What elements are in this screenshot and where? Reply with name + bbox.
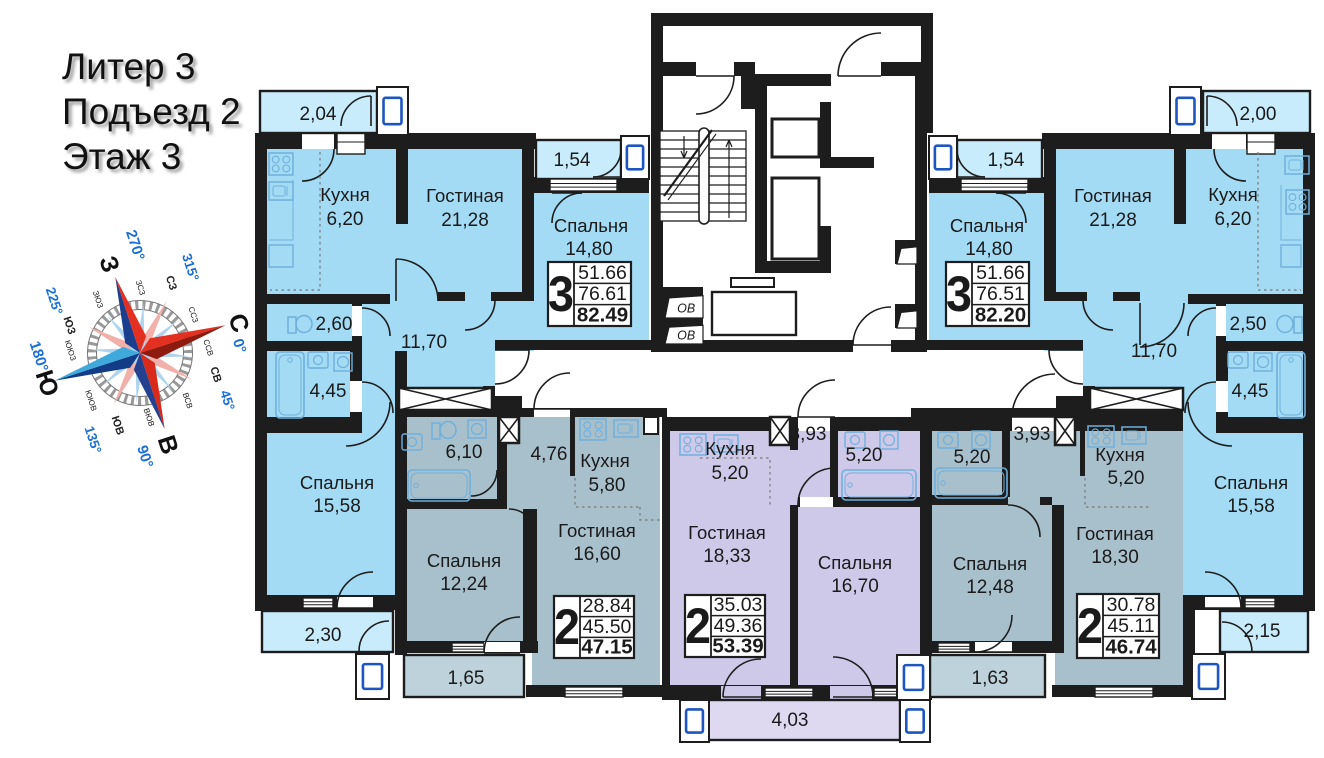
svg-text:Кухня: Кухня bbox=[705, 438, 755, 459]
svg-text:2,04: 2,04 bbox=[300, 104, 337, 125]
svg-text:12,48: 12,48 bbox=[966, 577, 1014, 598]
svg-text:Спальня: Спальня bbox=[554, 215, 628, 236]
svg-text:2,30: 2,30 bbox=[305, 625, 342, 646]
svg-text:Этаж 3: Этаж 3 bbox=[62, 136, 181, 177]
svg-text:Гостиная: Гостиная bbox=[426, 185, 504, 206]
svg-text:4,45: 4,45 bbox=[310, 381, 347, 402]
svg-text:1,54: 1,54 bbox=[988, 150, 1025, 171]
svg-text:47.15: 47.15 bbox=[581, 636, 632, 659]
svg-text:18,33: 18,33 bbox=[703, 546, 751, 567]
svg-text:18,30: 18,30 bbox=[1091, 547, 1139, 568]
svg-text:35.03: 35.03 bbox=[714, 594, 763, 616]
svg-text:15,58: 15,58 bbox=[1227, 496, 1275, 517]
svg-text:2: 2 bbox=[1077, 598, 1103, 654]
svg-text:3,93: 3,93 bbox=[1014, 424, 1051, 445]
svg-text:76.61: 76.61 bbox=[578, 283, 627, 305]
svg-text:Кухня: Кухня bbox=[1208, 184, 1258, 205]
svg-text:6,10: 6,10 bbox=[446, 442, 483, 463]
svg-text:6,20: 6,20 bbox=[1215, 209, 1252, 230]
svg-text:16,60: 16,60 bbox=[573, 544, 621, 565]
svg-text:28.84: 28.84 bbox=[583, 595, 632, 617]
svg-text:82.49: 82.49 bbox=[577, 304, 628, 327]
svg-text:1,65: 1,65 bbox=[448, 668, 485, 689]
svg-text:3: 3 bbox=[548, 266, 574, 322]
svg-text:12,24: 12,24 bbox=[440, 574, 488, 595]
svg-text:1,63: 1,63 bbox=[972, 668, 1009, 689]
svg-text:ОВ: ОВ bbox=[677, 328, 695, 342]
svg-text:5,20: 5,20 bbox=[1108, 468, 1145, 489]
svg-text:2: 2 bbox=[554, 599, 580, 655]
svg-text:6,20: 6,20 bbox=[327, 209, 364, 230]
svg-text:15,58: 15,58 bbox=[313, 496, 361, 517]
svg-text:Кухня: Кухня bbox=[320, 184, 370, 205]
svg-text:Подъезд 2: Подъезд 2 bbox=[62, 91, 241, 132]
svg-text:3,93: 3,93 bbox=[790, 424, 827, 445]
svg-text:5,20: 5,20 bbox=[954, 447, 991, 468]
svg-text:45.11: 45.11 bbox=[1107, 615, 1154, 637]
svg-text:4,03: 4,03 bbox=[772, 710, 809, 731]
svg-text:51.66: 51.66 bbox=[976, 262, 1025, 284]
svg-text:14,80: 14,80 bbox=[965, 239, 1013, 260]
svg-text:1,54: 1,54 bbox=[554, 150, 591, 171]
svg-text:82.20: 82.20 bbox=[975, 304, 1026, 327]
svg-text:21,28: 21,28 bbox=[441, 210, 489, 231]
svg-text:Кухня: Кухня bbox=[580, 450, 630, 471]
svg-text:76.51: 76.51 bbox=[976, 283, 1025, 305]
svg-text:11,70: 11,70 bbox=[401, 332, 447, 353]
svg-text:Спальня: Спальня bbox=[300, 472, 374, 493]
svg-text:4,76: 4,76 bbox=[531, 444, 568, 465]
svg-text:Гостиная: Гостиная bbox=[1076, 523, 1154, 544]
svg-text:5,80: 5,80 bbox=[589, 475, 626, 496]
svg-text:Спальня: Спальня bbox=[427, 550, 501, 571]
svg-text:2,50: 2,50 bbox=[1230, 314, 1267, 335]
svg-text:Спальня: Спальня bbox=[953, 553, 1027, 574]
svg-text:11,70: 11,70 bbox=[1131, 341, 1177, 362]
svg-text:Кухня: Кухня bbox=[1095, 444, 1145, 465]
svg-text:30.78: 30.78 bbox=[1107, 594, 1156, 616]
svg-text:5,20: 5,20 bbox=[846, 445, 883, 466]
svg-text:Спальня: Спальня bbox=[1214, 472, 1288, 493]
svg-text:Спальня: Спальня bbox=[950, 215, 1024, 236]
svg-text:ОВ: ОВ bbox=[677, 301, 695, 315]
svg-text:Гостиная: Гостиная bbox=[688, 522, 766, 543]
svg-text:Гостиная: Гостиная bbox=[558, 520, 636, 541]
svg-text:Спальня: Спальня bbox=[818, 552, 892, 573]
svg-text:4,45: 4,45 bbox=[1232, 381, 1269, 402]
svg-text:46.74: 46.74 bbox=[1105, 636, 1157, 659]
svg-text:14,80: 14,80 bbox=[565, 239, 613, 260]
svg-text:2: 2 bbox=[685, 598, 711, 654]
svg-text:Литер 3: Литер 3 bbox=[62, 46, 196, 87]
svg-text:5,20: 5,20 bbox=[712, 463, 749, 484]
svg-text:51.66: 51.66 bbox=[578, 262, 627, 284]
svg-text:2,60: 2,60 bbox=[316, 314, 353, 335]
svg-text:3: 3 bbox=[946, 266, 972, 322]
svg-text:53.39: 53.39 bbox=[712, 635, 763, 658]
svg-text:16,70: 16,70 bbox=[831, 576, 879, 597]
svg-text:21,28: 21,28 bbox=[1089, 210, 1137, 231]
svg-text:2,00: 2,00 bbox=[1240, 104, 1277, 125]
svg-text:Гостиная: Гостиная bbox=[1074, 185, 1152, 206]
